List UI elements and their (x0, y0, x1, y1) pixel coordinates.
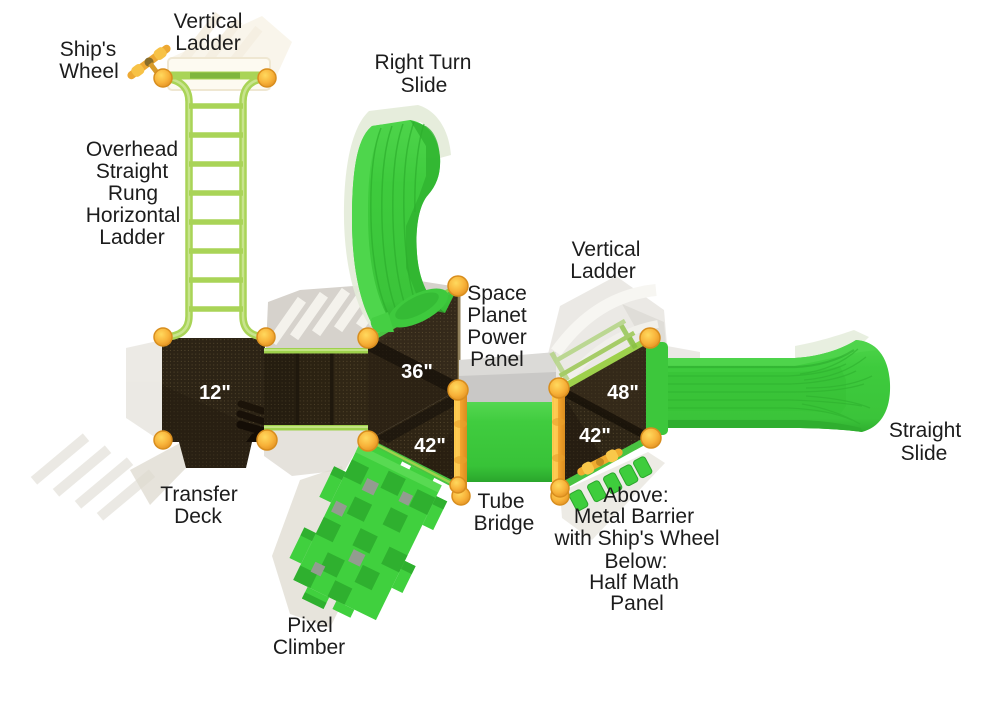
svg-text:Vertical: Vertical (174, 10, 243, 33)
svg-text:Ladder: Ladder (99, 226, 164, 249)
svg-text:Bridge: Bridge (474, 512, 535, 535)
svg-text:Right Turn: Right Turn (375, 51, 472, 74)
svg-text:48": 48" (607, 382, 639, 404)
svg-text:with Ship's Wheel: with Ship's Wheel (553, 527, 719, 550)
svg-text:Ladder: Ladder (175, 32, 240, 55)
svg-text:42": 42" (414, 435, 446, 457)
svg-text:Ship's: Ship's (60, 38, 117, 61)
svg-text:Rung: Rung (108, 182, 158, 205)
svg-text:Slide: Slide (401, 74, 448, 97)
svg-text:Planet: Planet (467, 304, 527, 327)
svg-text:Transfer: Transfer (160, 483, 237, 506)
svg-text:Straight: Straight (889, 419, 962, 442)
svg-text:Pixel: Pixel (287, 614, 333, 637)
svg-text:Deck: Deck (174, 505, 222, 528)
svg-text:Slide: Slide (901, 442, 948, 465)
svg-text:36": 36" (401, 361, 433, 383)
svg-text:Panel: Panel (470, 348, 524, 371)
svg-text:Half Math: Half Math (589, 571, 679, 594)
svg-text:Tube: Tube (477, 490, 524, 513)
svg-text:Climber: Climber (273, 636, 345, 659)
svg-text:Panel: Panel (610, 592, 664, 615)
svg-text:42": 42" (579, 425, 611, 447)
svg-text:Power: Power (467, 326, 527, 349)
svg-text:Horizontal: Horizontal (86, 204, 181, 227)
svg-text:Vertical: Vertical (572, 238, 641, 261)
svg-text:Below:: Below: (604, 550, 667, 573)
svg-text:Overhead: Overhead (86, 138, 178, 161)
svg-text:Above:: Above: (603, 484, 668, 507)
svg-text:Space: Space (467, 282, 527, 305)
svg-text:Wheel: Wheel (59, 60, 119, 83)
svg-text:12": 12" (199, 382, 231, 404)
svg-text:Ladder: Ladder (570, 260, 635, 283)
svg-text:Straight: Straight (96, 160, 169, 183)
svg-text:Metal Barrier: Metal Barrier (574, 505, 694, 528)
